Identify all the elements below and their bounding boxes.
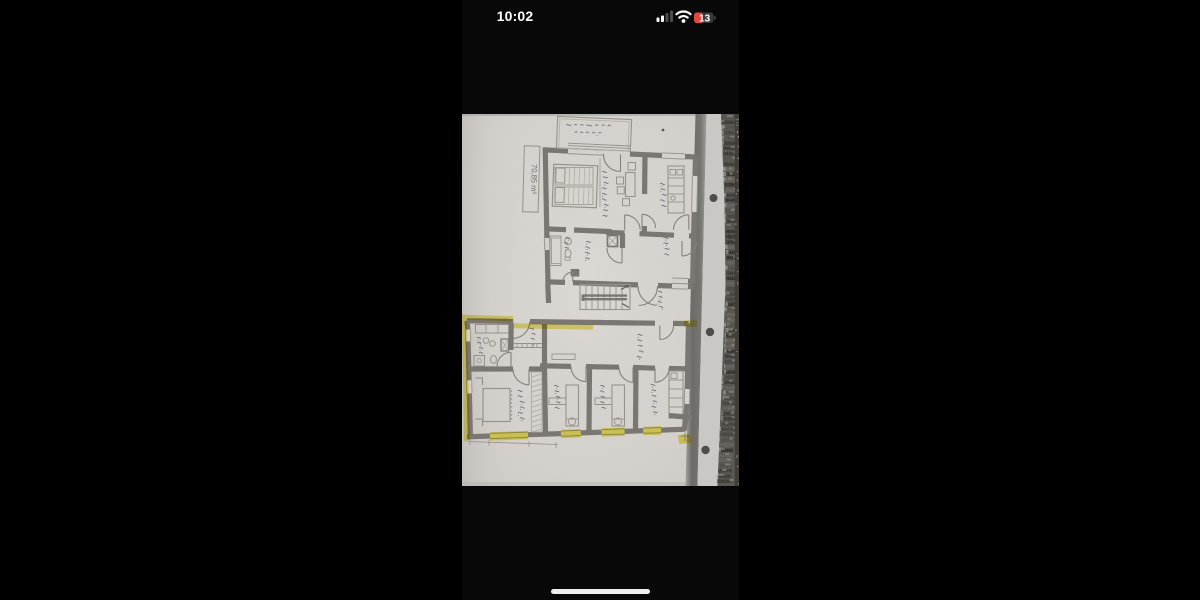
svg-text:70,85 m²: 70,85 m² [529, 164, 539, 195]
svg-text:13: 13 [699, 13, 711, 24]
